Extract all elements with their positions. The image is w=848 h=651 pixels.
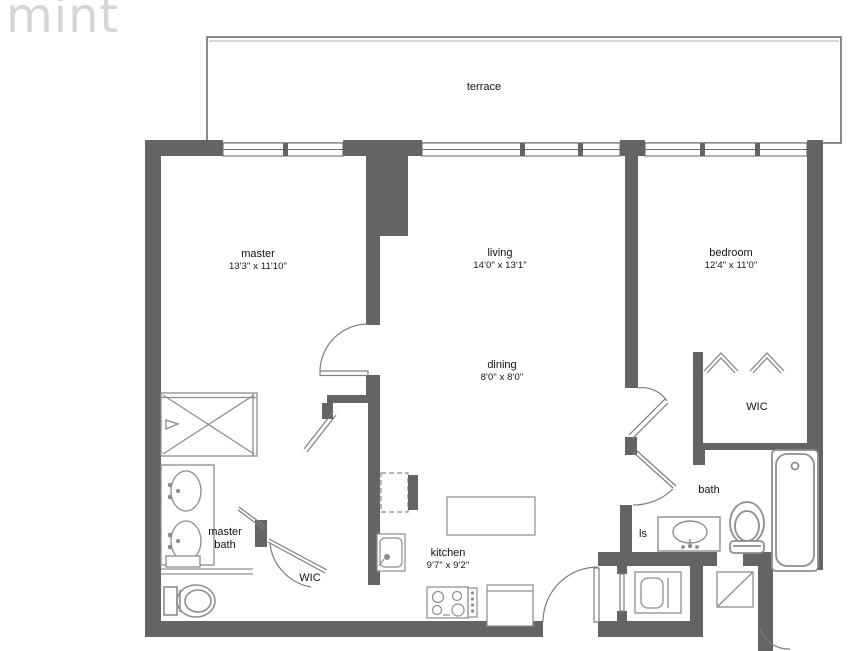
top-wall-center bbox=[343, 140, 422, 156]
bath-toilet bbox=[730, 502, 764, 553]
cooktop bbox=[427, 587, 477, 618]
bathtub bbox=[772, 450, 818, 571]
island-counter bbox=[447, 497, 535, 535]
room-label-terrace: terrace bbox=[424, 81, 544, 94]
wic-left-wall bbox=[693, 352, 703, 450]
room-label-dining: dining 8'0" x 8'0" bbox=[422, 359, 582, 384]
ac-unit bbox=[717, 572, 753, 607]
wic-bottom-wall bbox=[693, 443, 823, 450]
bedroom-door bbox=[629, 388, 668, 439]
bath-vanity bbox=[658, 517, 720, 551]
room-label-bath: bath bbox=[684, 484, 734, 497]
shower bbox=[161, 393, 257, 456]
entry-door bbox=[543, 567, 599, 622]
washer-dryer bbox=[635, 572, 681, 613]
room-label-living: living 14'0" x 13'1" bbox=[420, 247, 580, 272]
wd-closet-right-wall bbox=[690, 566, 703, 623]
hall-wall-stub bbox=[625, 437, 637, 455]
bath-door bbox=[633, 450, 676, 505]
room-label-bedroom: bedroom 12'4" x 11'0" bbox=[651, 247, 811, 272]
master-bath-fixtures bbox=[161, 393, 257, 617]
master-door bbox=[320, 324, 368, 376]
room-label-wic-master: WIC bbox=[285, 572, 335, 585]
room-label-wic-bedroom: WIC bbox=[727, 401, 787, 414]
master-toilet bbox=[164, 585, 215, 617]
refrigerator bbox=[381, 473, 418, 512]
bath-left-wall bbox=[620, 505, 632, 556]
top-wall-left bbox=[145, 140, 223, 156]
room-label-linen: ls bbox=[632, 528, 654, 541]
room-label-kitchen: kitchen 9'7" x 9'2" bbox=[378, 547, 518, 572]
bottom-wall-mid bbox=[598, 621, 703, 637]
left-wall bbox=[145, 140, 161, 637]
wd-closet-door bbox=[620, 574, 624, 611]
room-label-master-bath: master bath bbox=[197, 526, 253, 552]
bottom-wall-left bbox=[145, 621, 543, 637]
wd-door-jamb-top bbox=[617, 566, 627, 574]
master-living-wall-upper bbox=[366, 236, 380, 325]
utility-top-wall-a bbox=[598, 552, 717, 566]
top-wall-bedroom bbox=[620, 140, 645, 156]
bath-corner-block bbox=[693, 443, 705, 465]
wic-bifold-doors bbox=[704, 353, 784, 373]
master-living-wall-lower bbox=[366, 375, 380, 395]
pillar-master-living bbox=[366, 156, 408, 236]
wd-door-jamb-bottom bbox=[617, 611, 627, 621]
dishwasher bbox=[487, 585, 533, 626]
window-band bbox=[223, 143, 807, 156]
master-wic-corner bbox=[322, 403, 333, 419]
living-bedroom-wall bbox=[625, 156, 638, 388]
floor-plan: mint bbox=[0, 0, 848, 651]
room-label-master: master 13'3" x 11'10" bbox=[178, 248, 338, 273]
